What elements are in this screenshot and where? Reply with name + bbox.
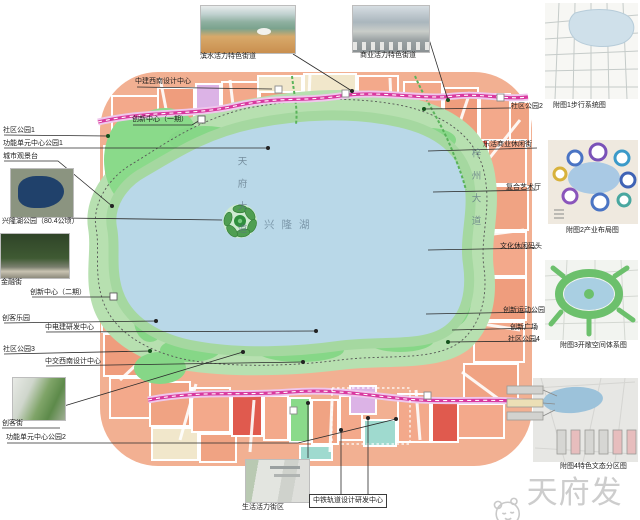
caption-commercial-street: 商业活力特色街道 xyxy=(360,52,416,60)
lake-name-label: 兴隆湖 xyxy=(264,217,317,232)
label-cscec-design-center: 中建西南设计中心 xyxy=(135,78,191,86)
label-composite-art-hall: 复合艺术厅 xyxy=(506,184,541,192)
label-maker-paradise: 创客乐园 xyxy=(2,315,30,323)
label-community-park-3: 社区公园3 xyxy=(3,346,35,354)
label-lohas-leisure-street: 乐活商业休闲街 xyxy=(483,141,532,149)
caption-waterfront-street: 滨水活力特色街道 xyxy=(200,53,256,61)
road-label-tianfu-avenue: 天府大道 xyxy=(236,156,246,286)
label-unit-central-park-1: 功能单元中心公园1 xyxy=(3,140,63,148)
photo-financial-street xyxy=(0,233,70,279)
label-financial-street: 金融街 xyxy=(1,279,22,287)
watermark: 天府发布 xyxy=(490,467,640,520)
photo-commercial-street xyxy=(352,5,430,53)
caption-inset-fig1: 附图1步行系统图 xyxy=(553,102,606,110)
inset-fig4-culture-zone-map xyxy=(505,378,638,462)
label-maker-street: 创客街 xyxy=(2,420,23,428)
label-crec-rail-design-center: 中铁轨道设计研发中心 xyxy=(309,494,387,508)
photo-waterfront-street xyxy=(200,5,296,54)
photo-lake-aerial xyxy=(10,168,74,218)
label-ccccc-design-center: 中交西南设计中心 xyxy=(45,358,101,366)
inset-fig2-industry-map xyxy=(548,140,638,224)
inset-fig1-pedestrian-map xyxy=(545,3,638,99)
label-community-park-1: 社区公园1 xyxy=(3,127,35,135)
tianfu-release-logo-icon xyxy=(490,492,524,520)
label-culture-wharf: 文化休闲码头 xyxy=(500,243,542,251)
inset-fig3-open-space-map xyxy=(545,260,638,340)
watermark-text: 天府发布 xyxy=(527,467,640,520)
label-xinglong-lake-park: 兴隆湖公园（80.4公顷） xyxy=(2,218,79,226)
road-label-zizhou-avenue: 梓州大道 xyxy=(470,148,480,308)
label-community-park-4: 社区公园4 xyxy=(508,336,540,344)
caption-inset-fig3: 附图3开敞空间体系图 xyxy=(560,342,627,350)
photo-maker-street xyxy=(12,377,66,421)
label-powerchina-rd-center: 中电建研发中心 xyxy=(45,324,94,332)
planning-map-figure: 中建西南设计中心 创新中心（一期） 社区公园1 功能单元中心公园1 城市观景台 … xyxy=(0,0,640,520)
label-innovation-plaza: 创新广场 xyxy=(510,324,538,332)
label-innovation-center-2: 创新中心（二期） xyxy=(30,289,86,297)
label-community-park-2: 社区公园2 xyxy=(511,103,543,111)
label-unit-central-park-2: 功能单元中心公园2 xyxy=(6,434,66,442)
label-life-vitality-block: 生活活力街区 xyxy=(242,504,284,512)
label-innovation-sports-park: 创新运动公园 xyxy=(503,307,545,315)
caption-inset-fig2: 附图2产业布局图 xyxy=(566,227,619,235)
photo-vitality-block xyxy=(245,459,310,503)
label-city-viewing-platform: 城市观景台 xyxy=(3,153,38,161)
label-innovation-center-1: 创新中心（一期） xyxy=(132,116,188,124)
